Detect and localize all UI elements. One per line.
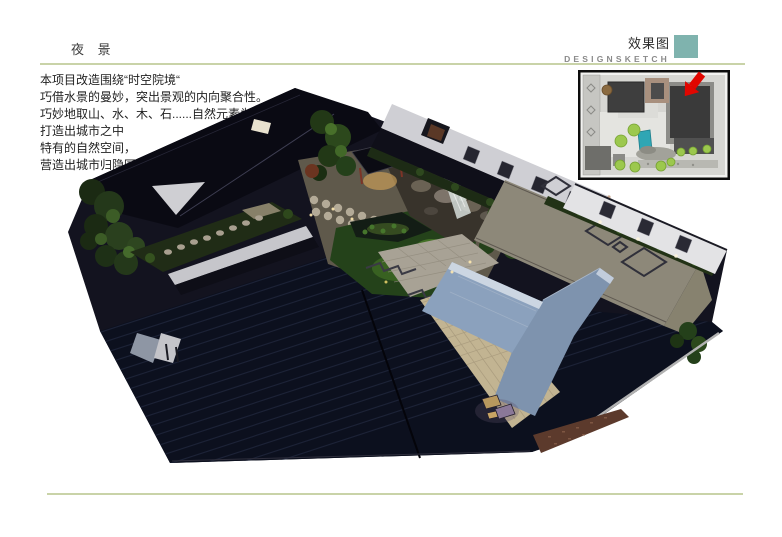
plan-roof-topleft: [608, 82, 644, 112]
plan-block-bottomleft: [585, 146, 611, 170]
presentation-slide: 夜 景 效果图 DESIGNSKETCH 本项目改造围绕“时空院境“ 巧借水景的…: [0, 0, 782, 537]
plan-tan-building: [645, 78, 669, 103]
site-plan-inset: [578, 70, 730, 180]
